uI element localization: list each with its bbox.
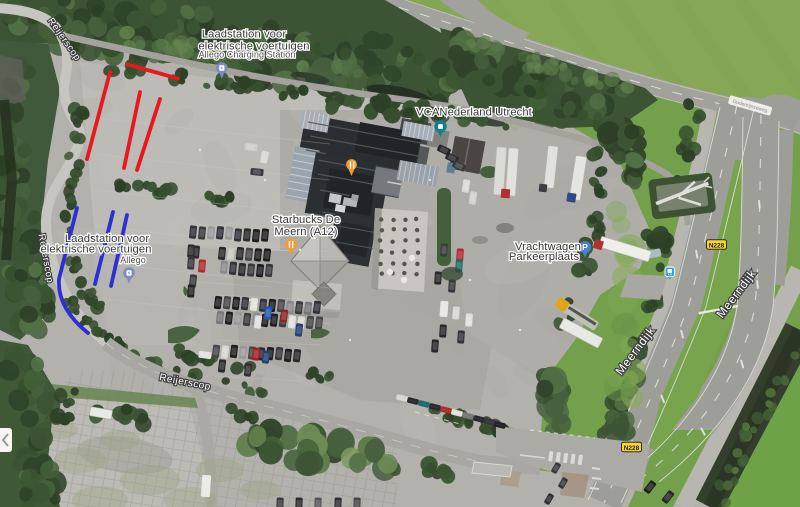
svg-text:P: P (582, 242, 588, 252)
svg-text:N228: N228 (624, 445, 640, 452)
svg-text:Parkeerplaats: Parkeerplaats (509, 251, 580, 263)
svg-text:Starbucks De: Starbucks De (272, 214, 340, 226)
svg-text:VCANederland Utrecht: VCANederland Utrecht (416, 107, 533, 119)
svg-text:Meern (A12): Meern (A12) (274, 226, 337, 238)
svg-text:Laadstation voor: Laadstation voor (202, 29, 286, 41)
svg-text:Allego: Allego (120, 255, 146, 265)
svg-text:elektrische voertuigen: elektrische voertuigen (40, 244, 151, 256)
svg-text:N228: N228 (709, 242, 725, 249)
svg-text:Allego Charging Station: Allego Charging Station (199, 50, 296, 60)
